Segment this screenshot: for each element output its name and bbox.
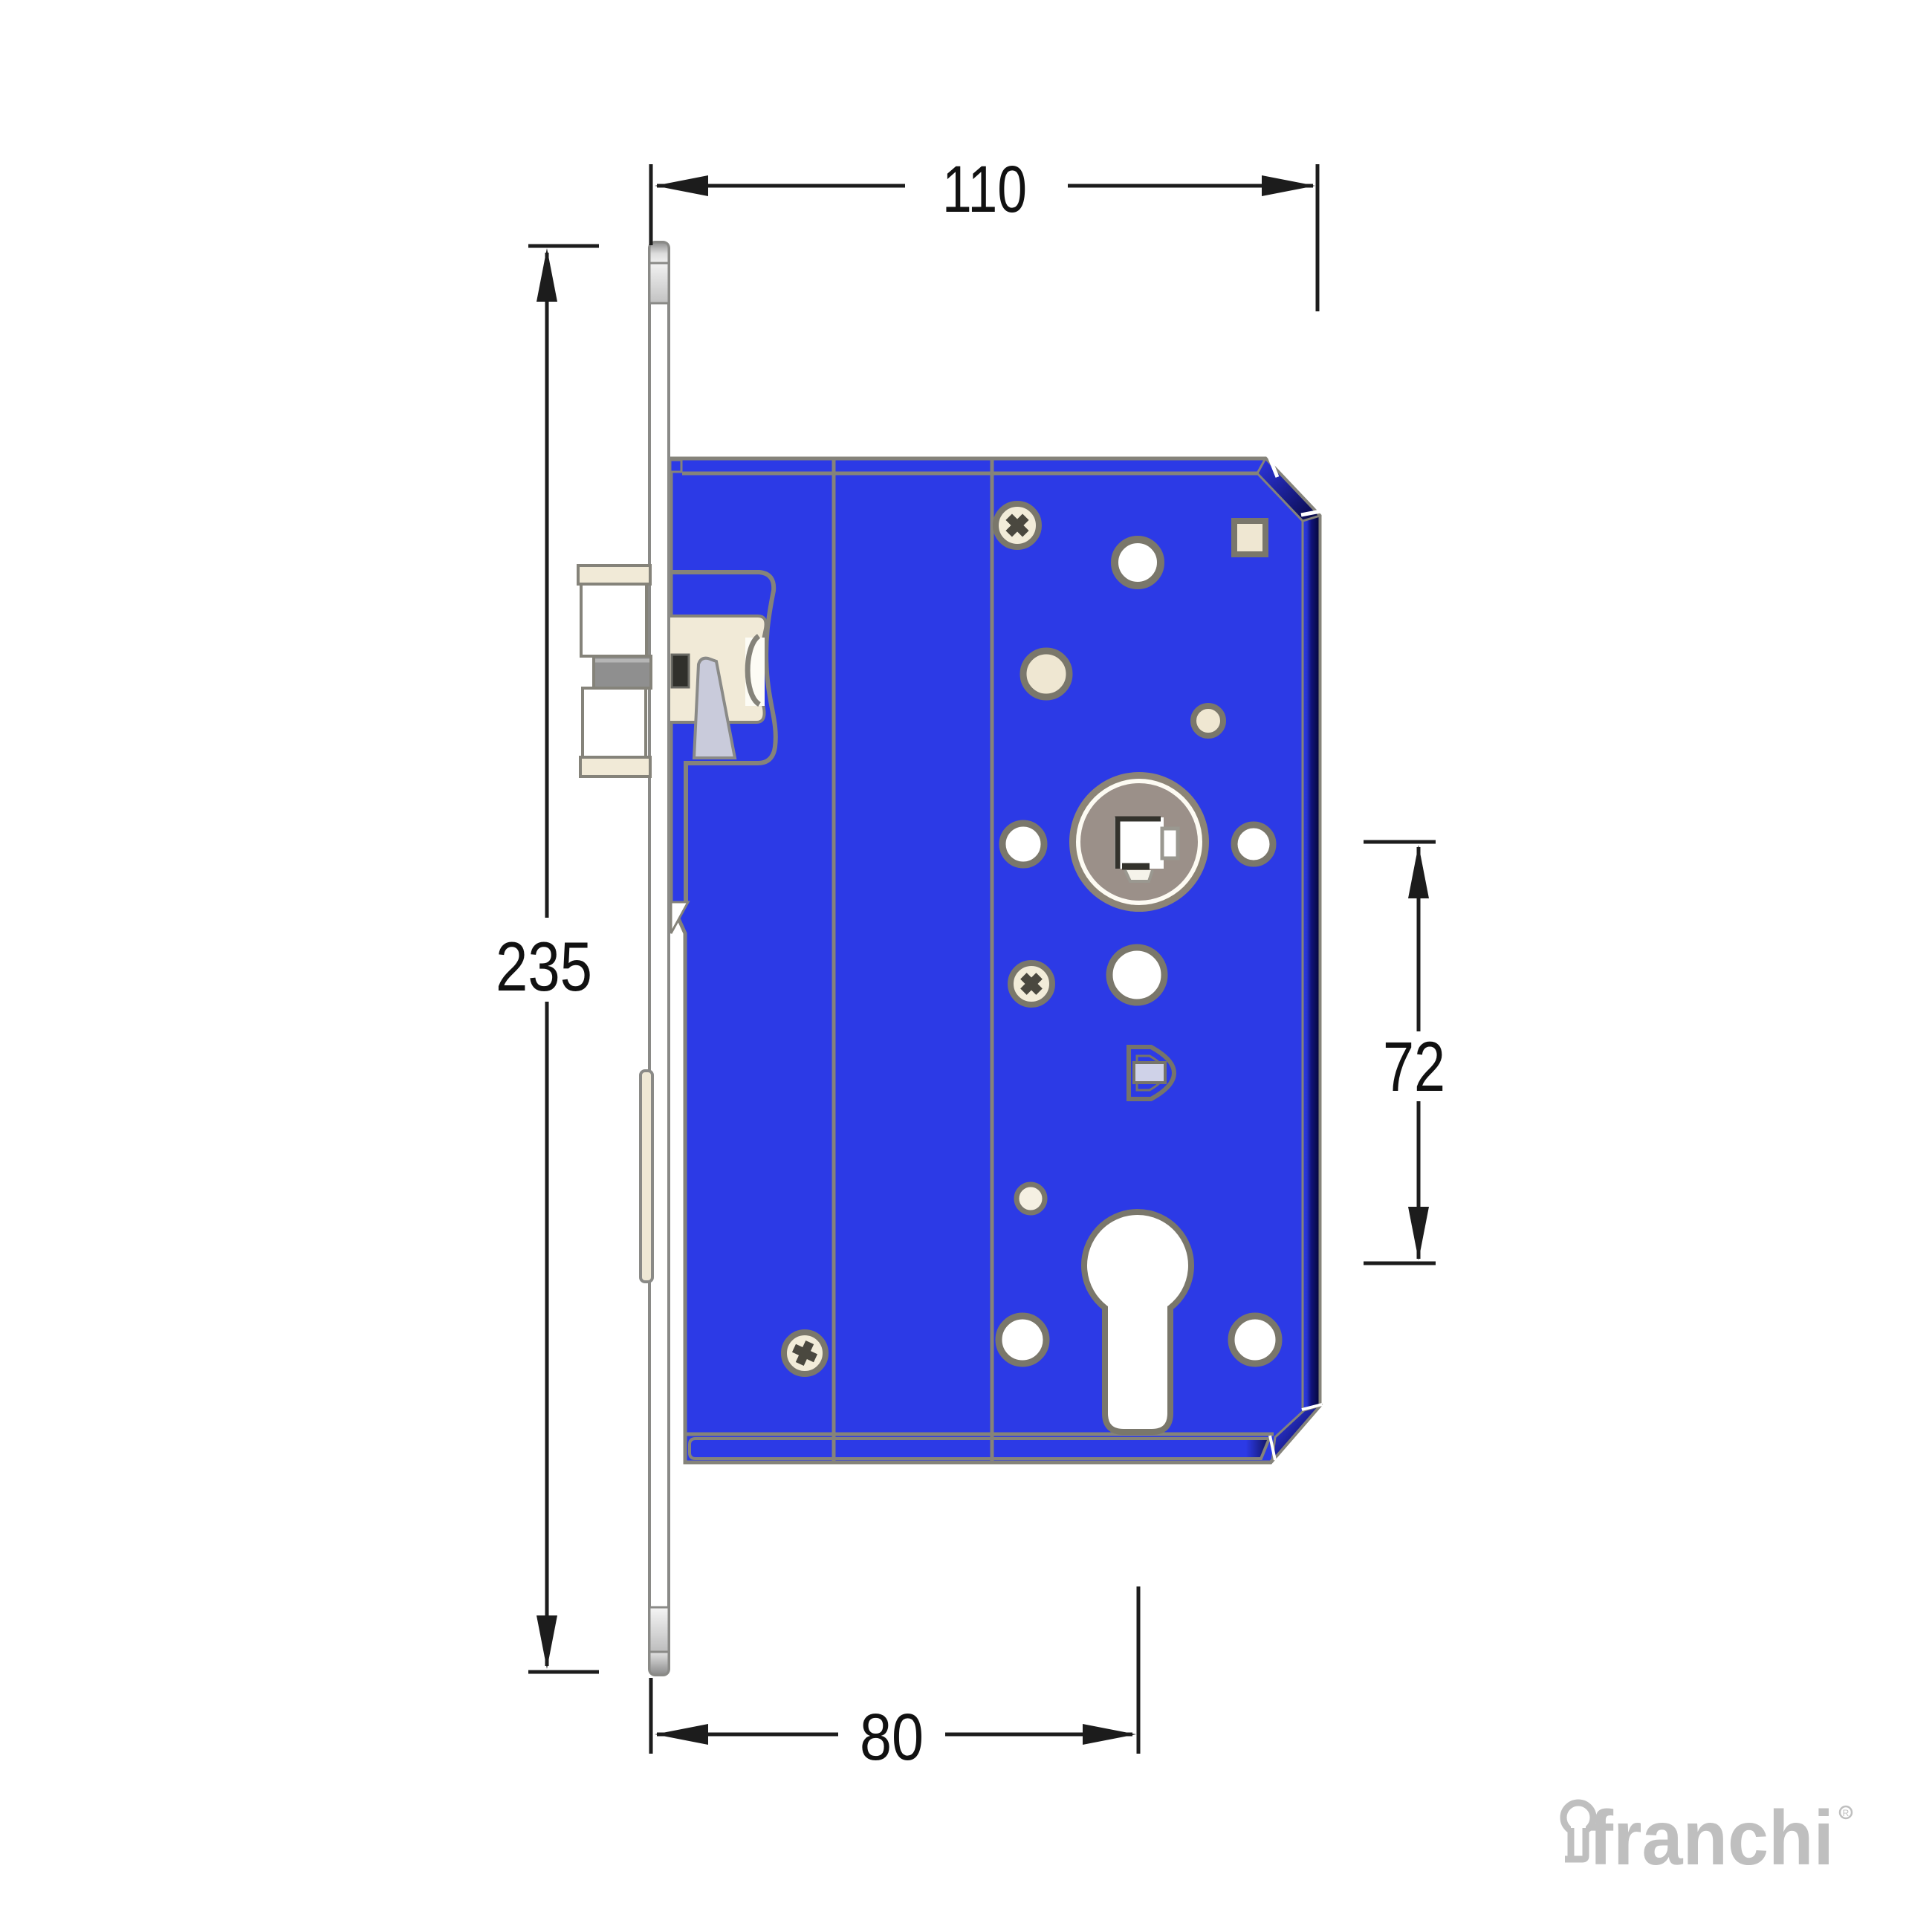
svg-text:R: R <box>1843 1808 1850 1818</box>
svg-text:235: 235 <box>496 927 592 1005</box>
svg-text:franchi: franchi <box>1589 1795 1834 1881</box>
svg-text:110: 110 <box>942 152 1027 226</box>
svg-text:72: 72 <box>1383 1028 1445 1106</box>
svg-text:80: 80 <box>860 1699 924 1774</box>
